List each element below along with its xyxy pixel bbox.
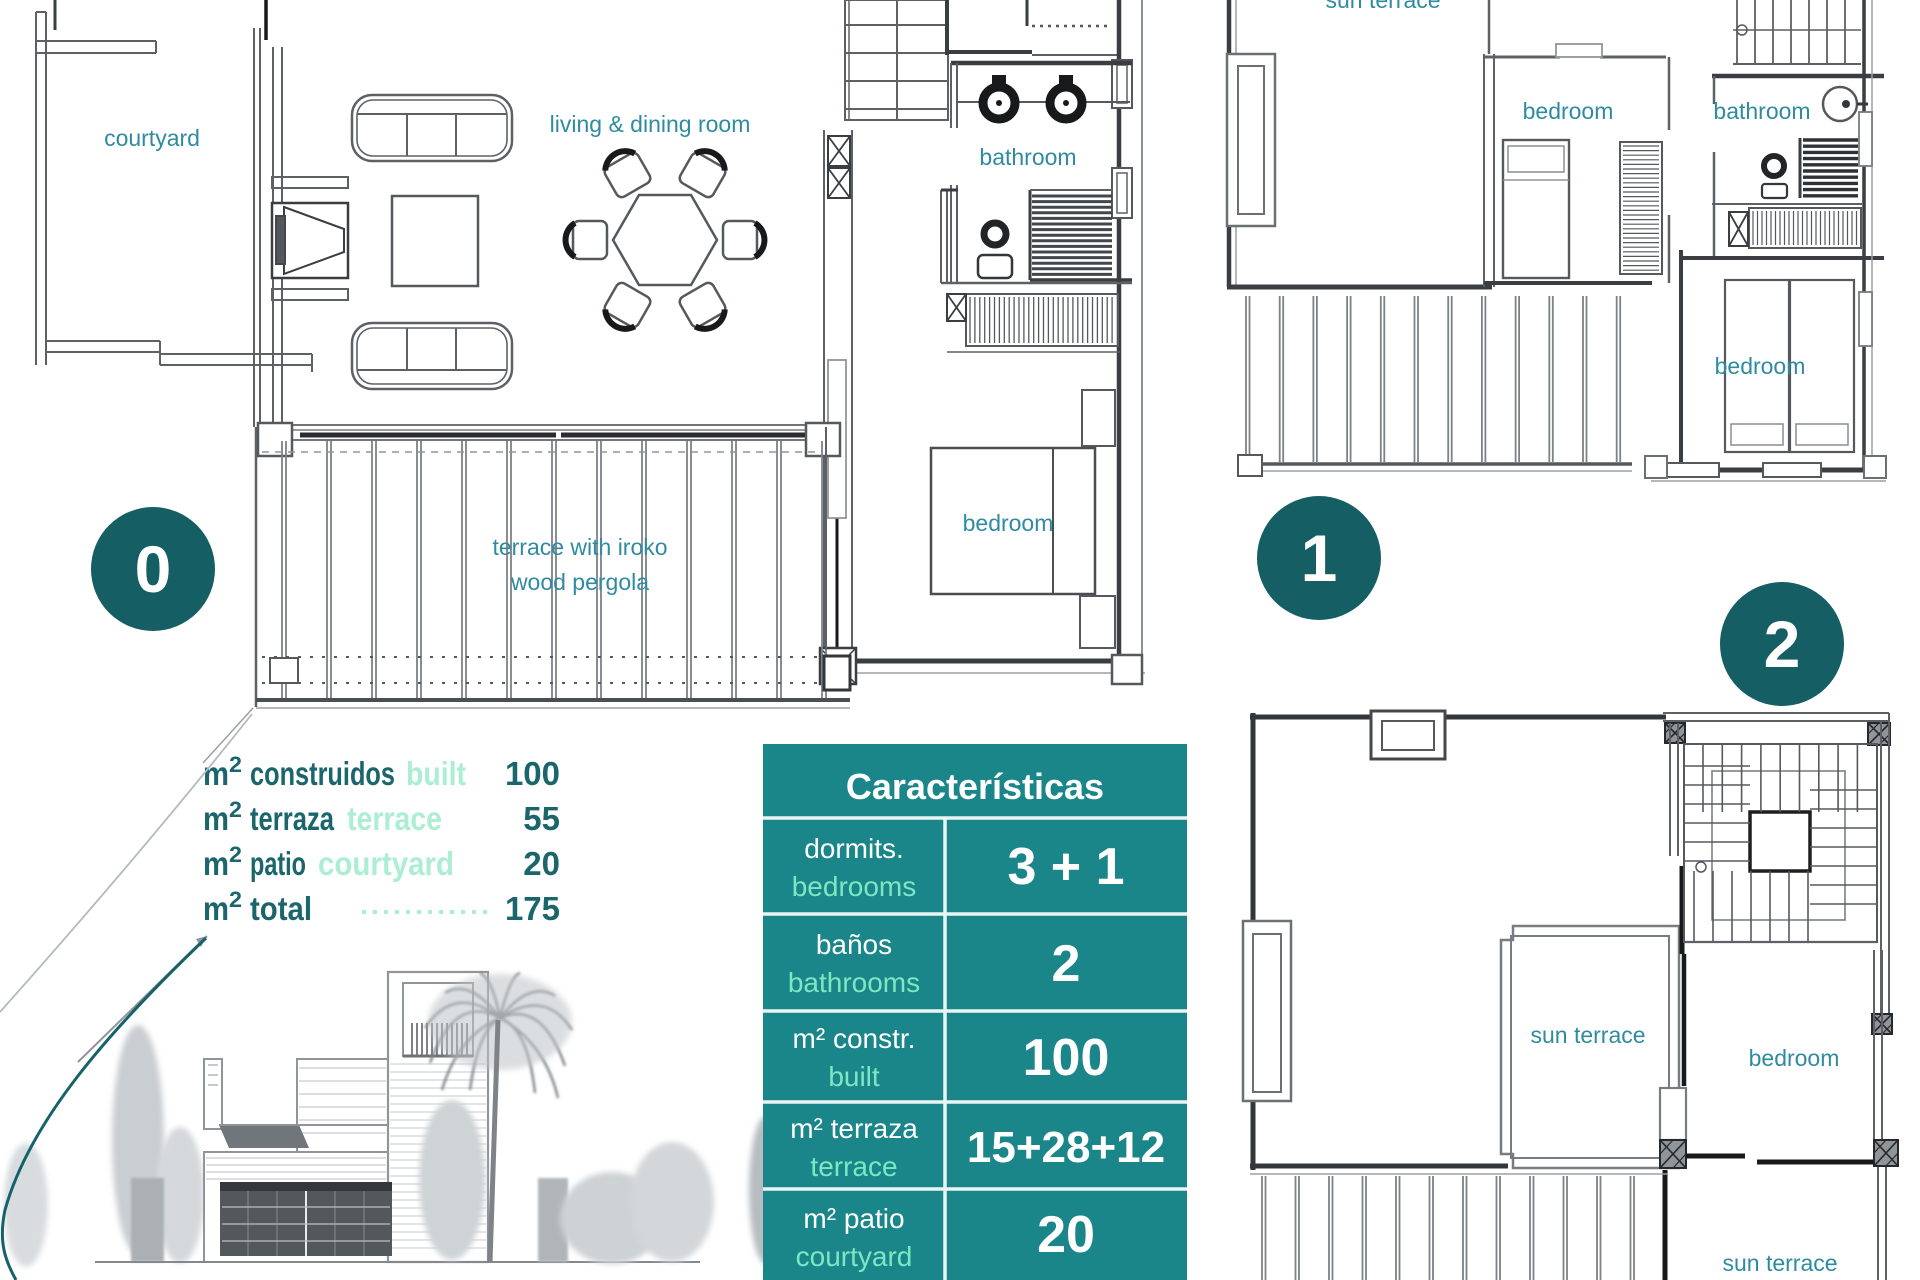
svg-text:175: 175	[505, 890, 560, 927]
svg-text:construidos: construidos	[250, 755, 395, 792]
svg-text:terrace with iroko: terrace with iroko	[492, 534, 667, 560]
svg-text:1: 1	[1301, 521, 1338, 595]
svg-text:m: m	[203, 890, 229, 927]
svg-text:living & dining room: living & dining room	[550, 111, 751, 137]
svg-text:0: 0	[135, 532, 172, 606]
svg-text:m² terraza: m² terraza	[790, 1113, 918, 1144]
svg-text:55: 55	[523, 800, 560, 837]
svg-text:wood pergola: wood pergola	[510, 569, 649, 595]
svg-text:terrace: terrace	[810, 1151, 897, 1182]
svg-text:courtyard: courtyard	[318, 845, 454, 882]
svg-text:bedrooms: bedrooms	[792, 871, 917, 902]
svg-text:m: m	[203, 800, 229, 837]
svg-text:100: 100	[1023, 1029, 1110, 1087]
svg-text:terraza: terraza	[250, 800, 335, 837]
svg-text:dormits.: dormits.	[804, 833, 904, 864]
svg-text:15+28+12: 15+28+12	[967, 1123, 1165, 1172]
svg-text:Características: Características	[846, 766, 1104, 807]
svg-text:2: 2	[229, 887, 242, 912]
svg-text:2: 2	[1764, 607, 1801, 681]
svg-text:courtyard: courtyard	[104, 125, 200, 151]
svg-text:sun terrace: sun terrace	[1722, 1250, 1837, 1276]
svg-text:2: 2	[1052, 935, 1081, 993]
svg-text:terrace: terrace	[347, 800, 442, 837]
svg-text:bathroom: bathroom	[979, 144, 1076, 170]
svg-text:baños: baños	[816, 929, 892, 960]
svg-text:built: built	[828, 1061, 880, 1092]
svg-text:20: 20	[523, 845, 560, 882]
svg-text:100: 100	[505, 755, 560, 792]
svg-text:3 + 1: 3 + 1	[1007, 838, 1124, 896]
svg-text:built: built	[406, 755, 466, 792]
svg-text:bedroom: bedroom	[1715, 353, 1806, 379]
svg-text:2: 2	[229, 842, 242, 867]
svg-text:m² constr.: m² constr.	[793, 1023, 916, 1054]
svg-text:patio: patio	[250, 845, 306, 882]
svg-text:m² patio: m² patio	[803, 1203, 904, 1234]
svg-text:bedroom: bedroom	[1749, 1045, 1840, 1071]
svg-text:m: m	[203, 845, 229, 882]
svg-text:m: m	[203, 755, 229, 792]
svg-text:bathroom: bathroom	[1713, 98, 1810, 124]
svg-text:total: total	[250, 890, 312, 927]
svg-text:2: 2	[229, 797, 242, 822]
svg-text:2: 2	[229, 752, 242, 777]
svg-text:sun terrace: sun terrace	[1530, 1022, 1645, 1048]
svg-text:sun terrace: sun terrace	[1325, 0, 1440, 13]
svg-text:courtyard: courtyard	[796, 1241, 913, 1272]
svg-text:bedroom: bedroom	[1523, 98, 1614, 124]
svg-text:bedroom: bedroom	[963, 510, 1054, 536]
svg-text:20: 20	[1037, 1206, 1095, 1264]
svg-text:bathrooms: bathrooms	[788, 967, 920, 998]
